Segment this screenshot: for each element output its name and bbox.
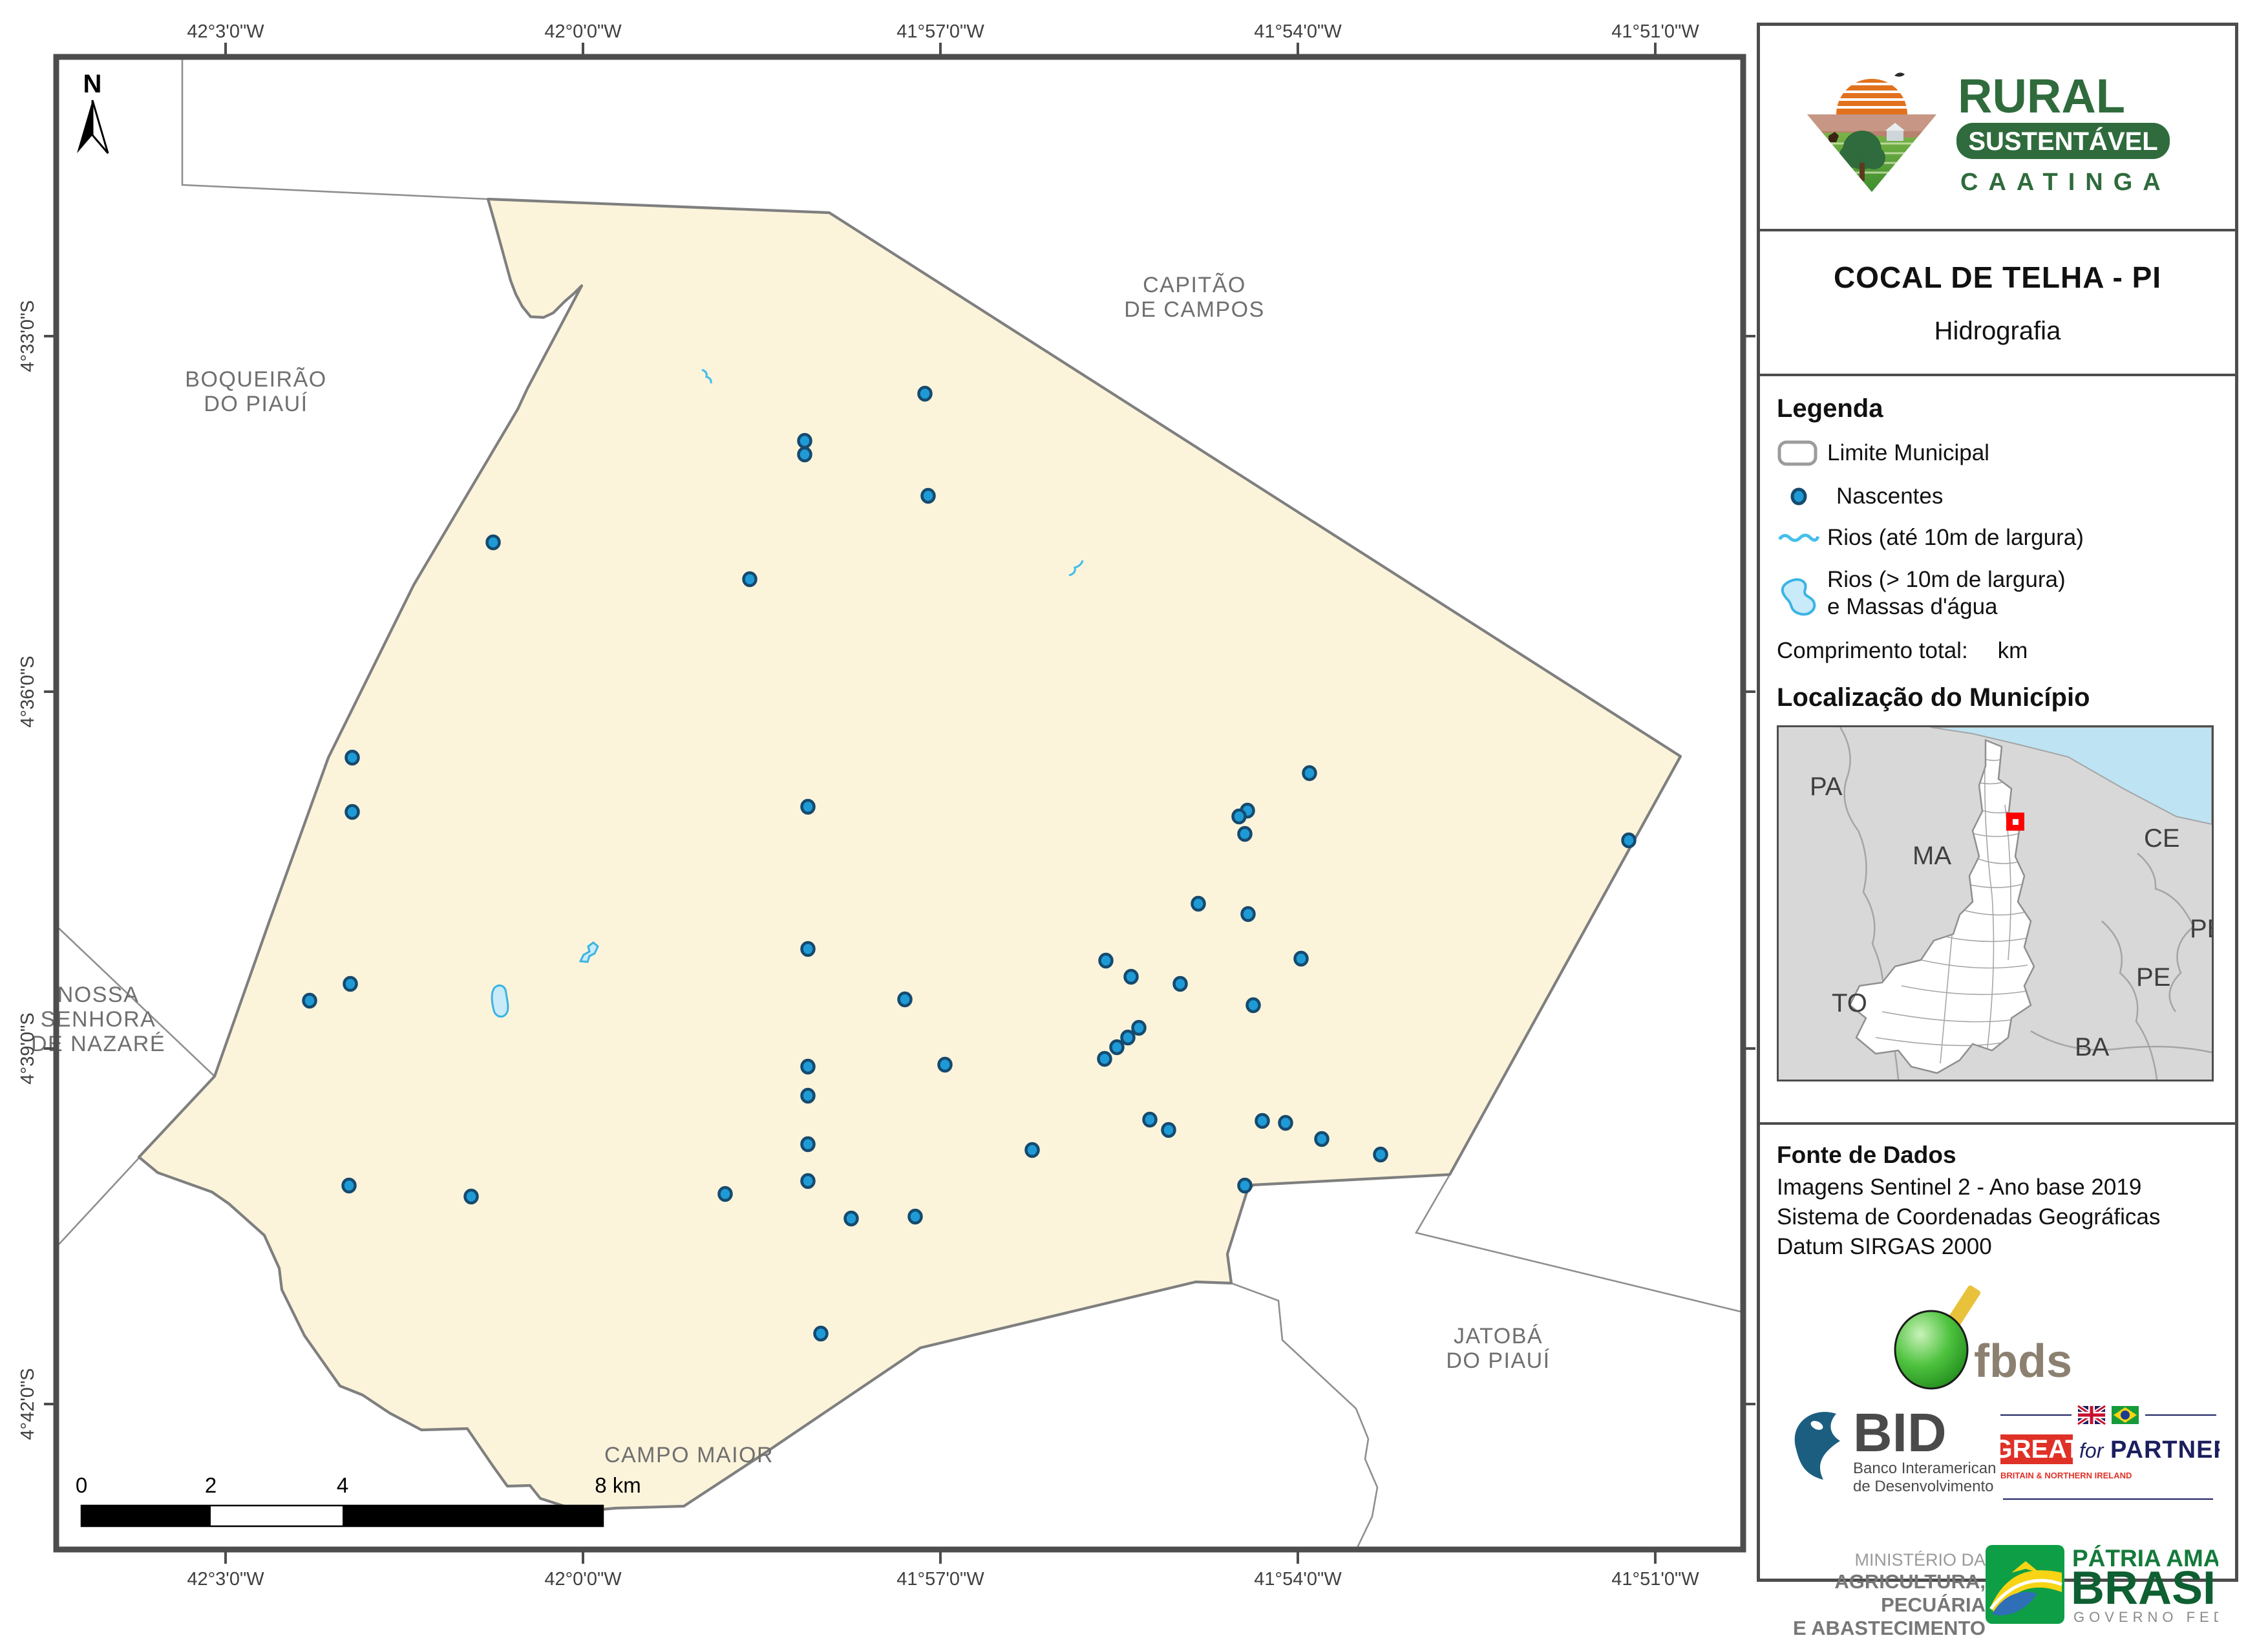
nascente-dot — [1623, 834, 1635, 847]
top-axis-label: 41°51'0"W — [1611, 21, 1699, 42]
logo-word-sustentavel: SUSTENTÁVEL — [1968, 127, 2157, 156]
fbds-wordmark: fbds — [1974, 1336, 2072, 1387]
legend-heading: Legenda — [1777, 394, 2218, 423]
nascente-dot — [465, 1190, 478, 1203]
top-axis-label: 42°0'0"W — [544, 21, 622, 42]
great-partnership-logo: GREAT for PARTNERSHIP BRITAIN & NORTHERN… — [1997, 1401, 2220, 1514]
nascente-dot — [346, 751, 359, 764]
logo-word-rural: RURAL — [1958, 69, 2125, 123]
svg-text:BRASIL: BRASIL — [2071, 1562, 2218, 1614]
state-label-ba: BA — [2075, 1033, 2110, 1061]
fonte-line-3: Datum SIRGAS 2000 — [1777, 1232, 2218, 1262]
nascente-dot — [802, 942, 814, 955]
localizacao-heading: Localização do Município — [1777, 683, 2218, 712]
top-axis-label: 41°57'0"W — [896, 21, 984, 42]
scalebar-label: 0 — [76, 1473, 87, 1497]
nascente-dot — [1233, 810, 1245, 823]
state-label-ce: CE — [2144, 824, 2180, 853]
nascente-dot — [1375, 1148, 1387, 1161]
nascente-dot — [802, 1060, 814, 1073]
sidebar: RURAL SUSTENTÁVEL CAATINGA COCAL DE TELH… — [1757, 23, 2238, 1582]
svg-text:GOVERNO FEDERAL: GOVERNO FEDERAL — [2073, 1609, 2218, 1625]
scalebar-segment — [343, 1506, 603, 1526]
hydrography-map: CAPITÃODE CAMPOSBOQUEIRÃODO PIAUÍNOSSASE… — [0, 0, 1784, 1604]
map-canvas: CAPITÃODE CAMPOSBOQUEIRÃODO PIAUÍNOSSASE… — [0, 0, 1784, 1604]
nascente-dot — [939, 1058, 951, 1071]
svg-text:GREAT: GREAT — [1997, 1435, 2081, 1464]
rural-sustentavel-logo: RURAL SUSTENTÁVEL CAATINGA — [1760, 26, 2235, 231]
bottom-axis-label: 41°51'0"W — [1611, 1569, 1699, 1590]
scalebar-label: 8 km — [595, 1473, 641, 1497]
water-body — [492, 986, 508, 1017]
state-label-pb: PB — [2190, 915, 2214, 943]
fonte-heading: Fonte de Dados — [1777, 1142, 2218, 1169]
nascente-dot — [1192, 897, 1205, 910]
nascente-dot — [1295, 952, 1308, 965]
rios-swatch-icon — [1777, 525, 1822, 551]
top-axis-label: 41°54'0"W — [1254, 21, 1342, 42]
state-label-pa: PA — [1810, 772, 1843, 801]
legend-item-massas: Rios (> 10m de largura) e Massas d'água — [1777, 566, 2218, 621]
nascente-dot — [909, 1210, 922, 1223]
nascente-dot — [802, 1089, 814, 1102]
massas-agua-swatch-icon — [1777, 566, 1822, 621]
fbds-logo-icon: fbds — [1891, 1279, 2104, 1392]
nascente-dot — [1239, 1179, 1251, 1192]
bottom-axis-label: 41°57'0"W — [896, 1569, 984, 1590]
nascente-dot — [1125, 970, 1138, 983]
neighbor-municipality-label: BOQUEIRÃODO PIAUÍ — [185, 367, 326, 416]
north-label: N — [83, 70, 102, 98]
legend-item-nascentes: Nascentes — [1777, 483, 2218, 510]
svg-text:de Desenvolvimento: de Desenvolvimento — [1853, 1478, 1993, 1495]
logo-word-caatinga: CAATINGA — [1960, 169, 2171, 196]
nascente-dot — [1174, 977, 1187, 990]
nascentes-swatch-icon — [1786, 484, 1822, 509]
nascente-dot — [799, 448, 811, 461]
state-label-pe: PE — [2136, 963, 2170, 992]
nascente-dot — [1144, 1113, 1156, 1126]
scalebar-label: 4 — [337, 1473, 348, 1497]
scalebar-label: 2 — [205, 1473, 217, 1497]
nascente-dot — [799, 434, 811, 447]
nascente-dot — [1316, 1133, 1328, 1145]
top-axis-label: 42°3'0"W — [187, 21, 264, 42]
legend-item-rios: Rios (até 10m de largura) — [1777, 524, 2218, 551]
nascente-dot — [1026, 1144, 1039, 1156]
nascente-dot — [744, 573, 756, 586]
nascente-dot — [1122, 1031, 1134, 1044]
state-label-to: TO — [1832, 989, 1867, 1017]
svg-text:BID: BID — [1853, 1402, 1947, 1463]
bottom-axis-label: 42°0'0"W — [544, 1569, 622, 1590]
svg-text:Banco Interamericano: Banco Interamericano — [1853, 1460, 1997, 1477]
rural-caatinga-logo-icon: RURAL SUSTENTÁVEL CAATINGA — [1797, 53, 2198, 202]
nascente-dot — [802, 1138, 814, 1151]
great-logo-icon: GREAT for PARTNERSHIP BRITAIN & NORTHERN… — [1997, 1401, 2220, 1511]
nascente-dot — [899, 993, 911, 1006]
nascente-dot — [802, 800, 814, 813]
left-axis-label: 4°39'0"S — [17, 1012, 38, 1084]
nascente-dot — [1099, 1052, 1111, 1065]
comprimento-total: Comprimento total:km — [1777, 638, 2218, 664]
bid-logo-icon: BID Banco Interamericano de Desenvolvime… — [1777, 1401, 1997, 1504]
bid-logo: BID Banco Interamericano de Desenvolvime… — [1777, 1401, 1997, 1507]
nascente-dot — [719, 1187, 732, 1200]
bottom-axis-label: 41°54'0"W — [1254, 1569, 1342, 1590]
fonte-line-2: Sistema de Coordenadas Geográficas — [1777, 1202, 2218, 1232]
page-subtitle: Hidrografia — [1934, 317, 2061, 346]
svg-text:PARTNERSHIP: PARTNERSHIP — [2110, 1436, 2220, 1464]
scalebar-segment — [211, 1506, 343, 1526]
nascente-dot — [1133, 1021, 1145, 1034]
nascente-dot — [922, 489, 935, 502]
page-title: COCAL DE TELHA - PI — [1834, 260, 2161, 295]
nascente-dot — [346, 805, 359, 818]
uk-flag-icon — [2078, 1406, 2105, 1424]
nascente-dot — [1242, 908, 1255, 921]
svg-text:for: for — [2079, 1439, 2104, 1462]
state-locator-minimap: PAMATOCEPBPEBA — [1777, 725, 2214, 1081]
nascente-dot — [815, 1327, 827, 1340]
patria-amada-brasil-logo: PÁTRIA AMADA BRASIL GOVERNO FEDERAL — [1986, 1542, 2218, 1632]
nascente-dot — [344, 977, 357, 990]
neighbor-municipality-label: JATOBÁDO PIAUÍ — [1446, 1324, 1550, 1373]
brazil-flag-icon — [2112, 1406, 2139, 1424]
nascente-dot — [1256, 1114, 1269, 1127]
nascente-dot — [845, 1212, 858, 1225]
bottom-axis-label: 42°3'0"W — [187, 1569, 264, 1590]
nascente-dot — [1280, 1116, 1292, 1129]
nascente-dot — [1247, 999, 1260, 1012]
ministerio-agricultura-logo: MINISTÉRIO DA AGRICULTURA, PECUÁRIA E AB… — [1777, 1550, 1986, 1640]
nascente-dot — [1239, 827, 1251, 840]
fonte-line-1: Imagens Sentinel 2 - Ano base 2019 — [1777, 1173, 2218, 1202]
nascente-dot — [1304, 767, 1316, 780]
state-label-ma: MA — [1913, 842, 1951, 870]
left-axis-label: 4°42'0"S — [17, 1368, 38, 1440]
limite-municipal-swatch-icon — [1777, 438, 1822, 469]
svg-text:BRITAIN & NORTHERN IRELAND: BRITAIN & NORTHERN IRELAND — [2000, 1471, 2132, 1480]
legend-item-limite: Limite Municipal — [1777, 438, 2218, 469]
nascente-dot — [802, 1175, 814, 1187]
nascente-dot — [1111, 1041, 1123, 1054]
neighbor-municipality-label: CAMPO MAIOR — [604, 1443, 774, 1467]
nascente-dot — [1163, 1124, 1175, 1136]
scalebar-segment — [81, 1506, 211, 1526]
land-triangle — [1807, 114, 1936, 192]
bird-icon — [1894, 72, 1905, 76]
nascente-dot — [487, 536, 500, 549]
nascente-dot — [304, 994, 316, 1007]
nascente-dot — [343, 1179, 355, 1192]
nascente-dot — [1100, 954, 1112, 967]
left-axis-label: 4°36'0"S — [17, 655, 38, 727]
fbds-logo: fbds — [1777, 1279, 2218, 1392]
nascente-dot — [919, 387, 931, 400]
brasil-logo-icon: PÁTRIA AMADA BRASIL GOVERNO FEDERAL — [1986, 1542, 2218, 1629]
sun-icon — [1833, 78, 1911, 118]
left-axis-label: 4°33'0"S — [17, 300, 38, 372]
neighbor-municipality-label: CAPITÃODE CAMPOS — [1124, 273, 1265, 322]
